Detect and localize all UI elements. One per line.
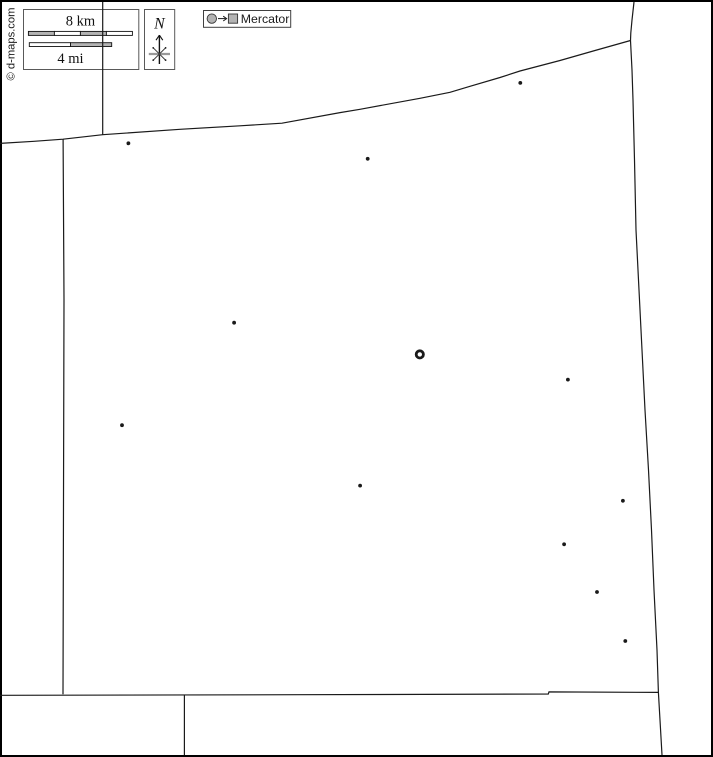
svg-text:N: N <box>153 15 166 32</box>
svg-text:8 km: 8 km <box>66 14 96 30</box>
svg-text:4 mi: 4 mi <box>57 51 83 67</box>
svg-text:© d-maps.com: © d-maps.com <box>6 8 18 81</box>
svg-text:Mercator: Mercator <box>241 12 290 26</box>
